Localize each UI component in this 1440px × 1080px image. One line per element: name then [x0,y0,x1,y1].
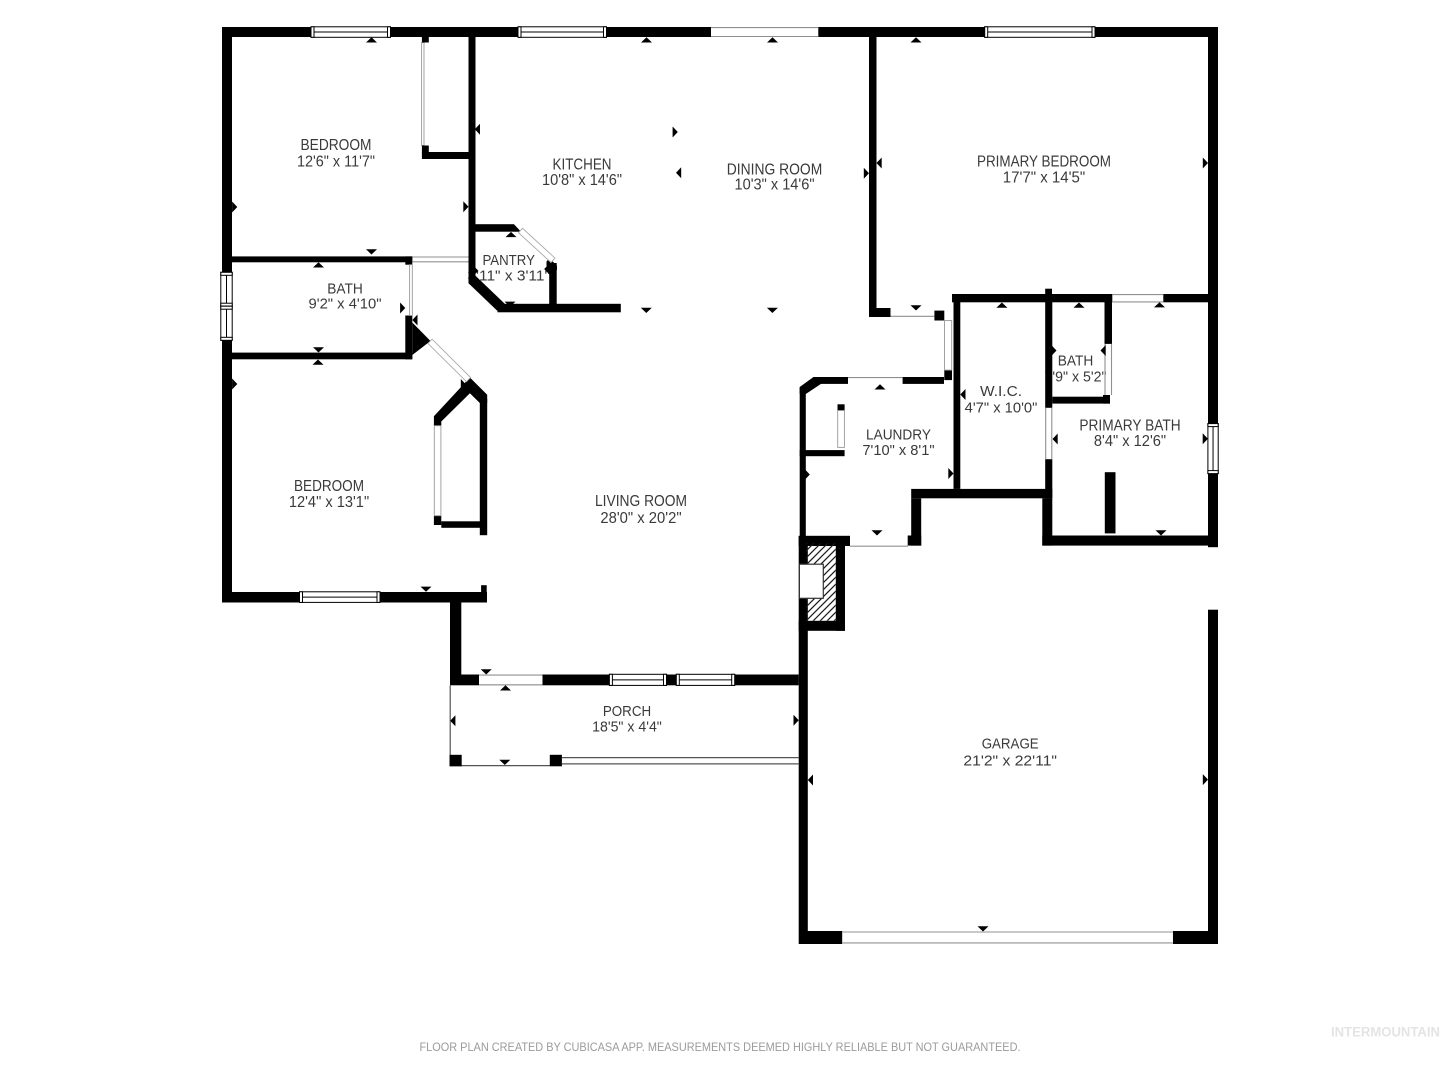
svg-text:BATH: BATH [327,282,363,298]
svg-text:FLOOR PLAN CREATED BY CUBICASA: FLOOR PLAN CREATED BY CUBICASA APP. MEAS… [420,1040,1021,1054]
svg-text:LAUNDRY: LAUNDRY [866,427,931,444]
svg-text:BATH: BATH [1058,354,1094,370]
svg-text:BEDROOM: BEDROOM [301,137,372,154]
svg-text:12'6" x 11'7": 12'6" x 11'7" [297,154,375,171]
svg-text:17'7" x 14'5": 17'7" x 14'5" [1003,170,1086,187]
svg-text:W.I.C.: W.I.C. [980,383,1022,400]
svg-text:KITCHEN: KITCHEN [553,156,612,173]
svg-text:9'2" x 4'10": 9'2" x 4'10" [309,297,382,313]
svg-text:21'2" x 22'11": 21'2" x 22'11" [963,753,1057,770]
svg-text:28'0" x 20'2": 28'0" x 20'2" [600,510,681,527]
svg-text:BEDROOM: BEDROOM [294,478,364,495]
svg-text:GARAGE: GARAGE [982,736,1039,753]
svg-text:PRIMARY BATH: PRIMARY BATH [1079,418,1180,435]
svg-text:INTERMOUNTAIN: INTERMOUNTAIN [1331,1025,1440,1040]
svg-text:12'4" x 13'1": 12'4" x 13'1" [289,494,369,511]
svg-text:7'10" x 8'1": 7'10" x 8'1" [862,442,934,459]
svg-text:PRIMARY BEDROOM: PRIMARY BEDROOM [977,153,1111,170]
svg-text:8'4" x 12'6": 8'4" x 12'6" [1094,433,1166,450]
svg-text:PANTRY: PANTRY [482,253,535,269]
svg-text:4'7" x 10'0": 4'7" x 10'0" [965,400,1038,417]
svg-text:PORCH: PORCH [603,703,651,720]
svg-text:18'5" x 4'4": 18'5" x 4'4" [592,719,662,736]
svg-text:7'9" x 5'2": 7'9" x 5'2" [1045,370,1107,386]
svg-text:10'3" x 14'6": 10'3" x 14'6" [735,177,815,194]
svg-text:LIVING ROOM: LIVING ROOM [595,493,687,510]
svg-text:10'8" x 14'6": 10'8" x 14'6" [542,172,622,189]
